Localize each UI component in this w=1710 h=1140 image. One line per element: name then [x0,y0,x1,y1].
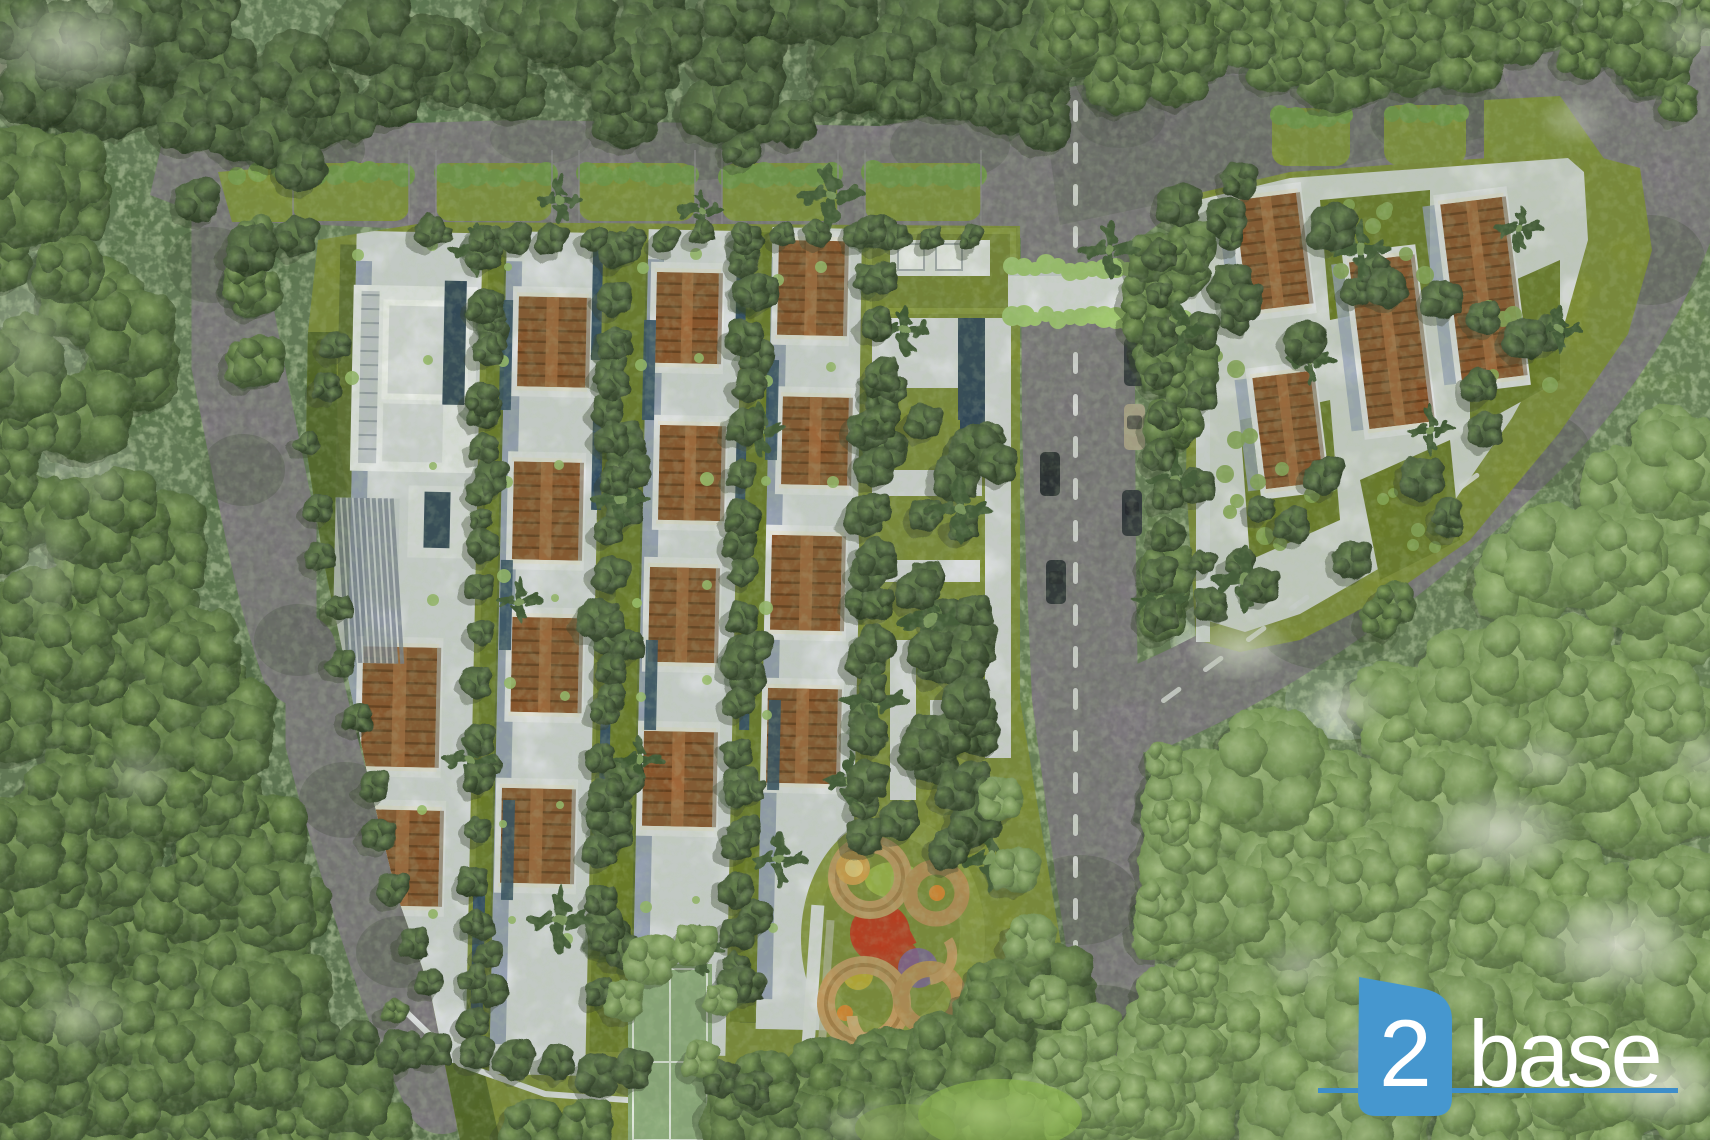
svg-text:base: base [1468,1001,1660,1106]
svg-text:2: 2 [1379,1001,1432,1107]
